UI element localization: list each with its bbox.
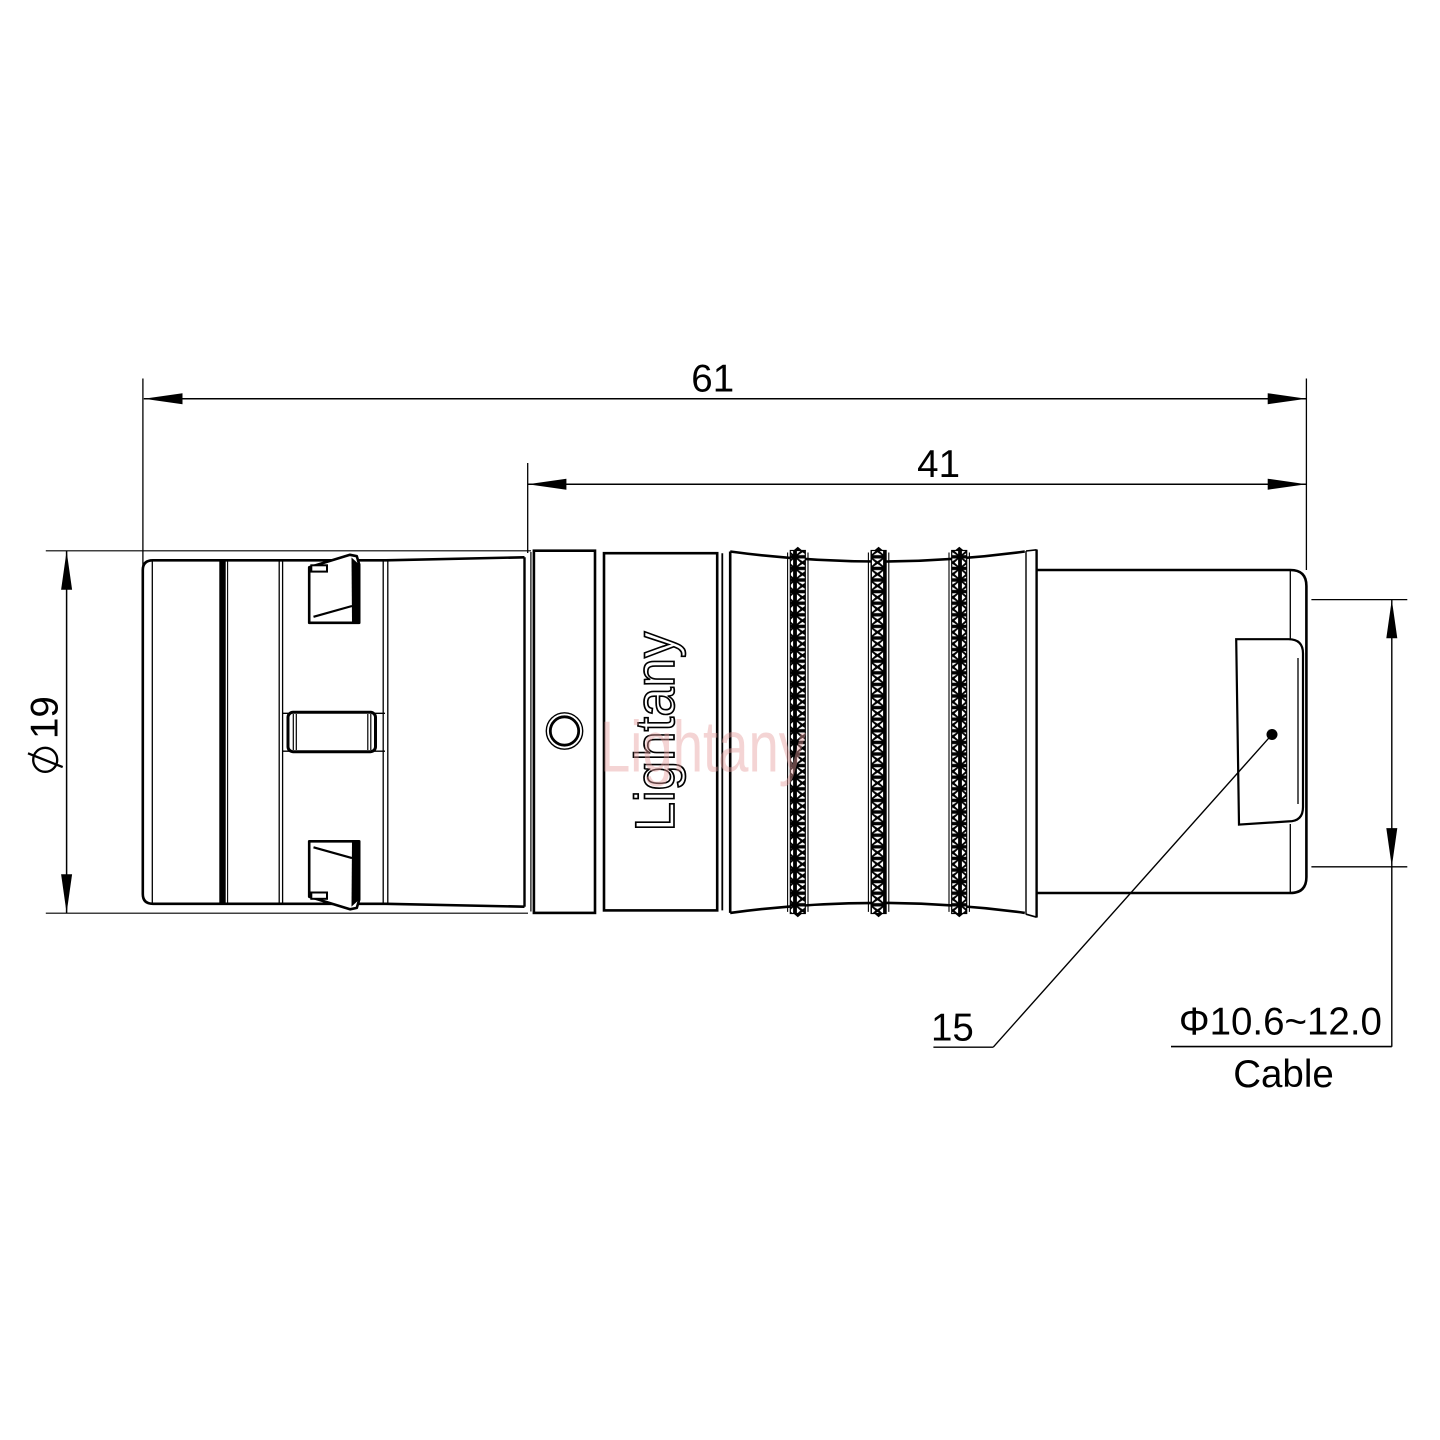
svg-text:Cable: Cable (1233, 1053, 1334, 1096)
svg-text:41: 41 (917, 443, 960, 486)
svg-text:Φ10.6~12.0: Φ10.6~12.0 (1179, 1001, 1382, 1044)
svg-text:61: 61 (691, 358, 734, 401)
svg-text:Lightany: Lightany (600, 708, 806, 788)
svg-text:15: 15 (931, 1007, 974, 1050)
svg-text:19: 19 (23, 696, 66, 739)
